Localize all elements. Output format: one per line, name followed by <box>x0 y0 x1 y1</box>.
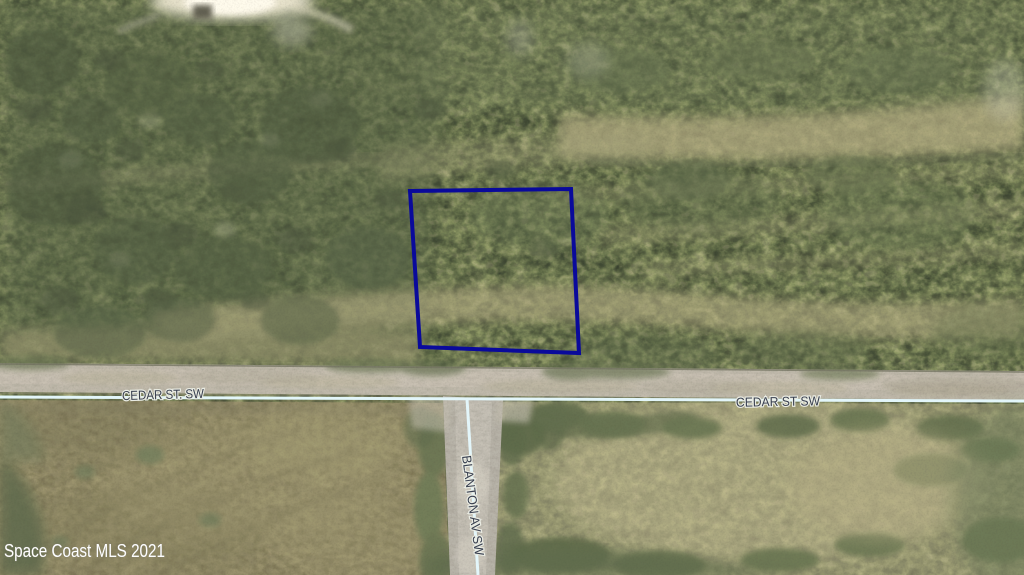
svg-text:CEDAR ST. SW: CEDAR ST. SW <box>122 386 205 403</box>
svg-text:Space Coast MLS 2021: Space Coast MLS 2021 <box>4 540 165 561</box>
svg-text:CEDAR ST SW: CEDAR ST SW <box>736 393 821 409</box>
